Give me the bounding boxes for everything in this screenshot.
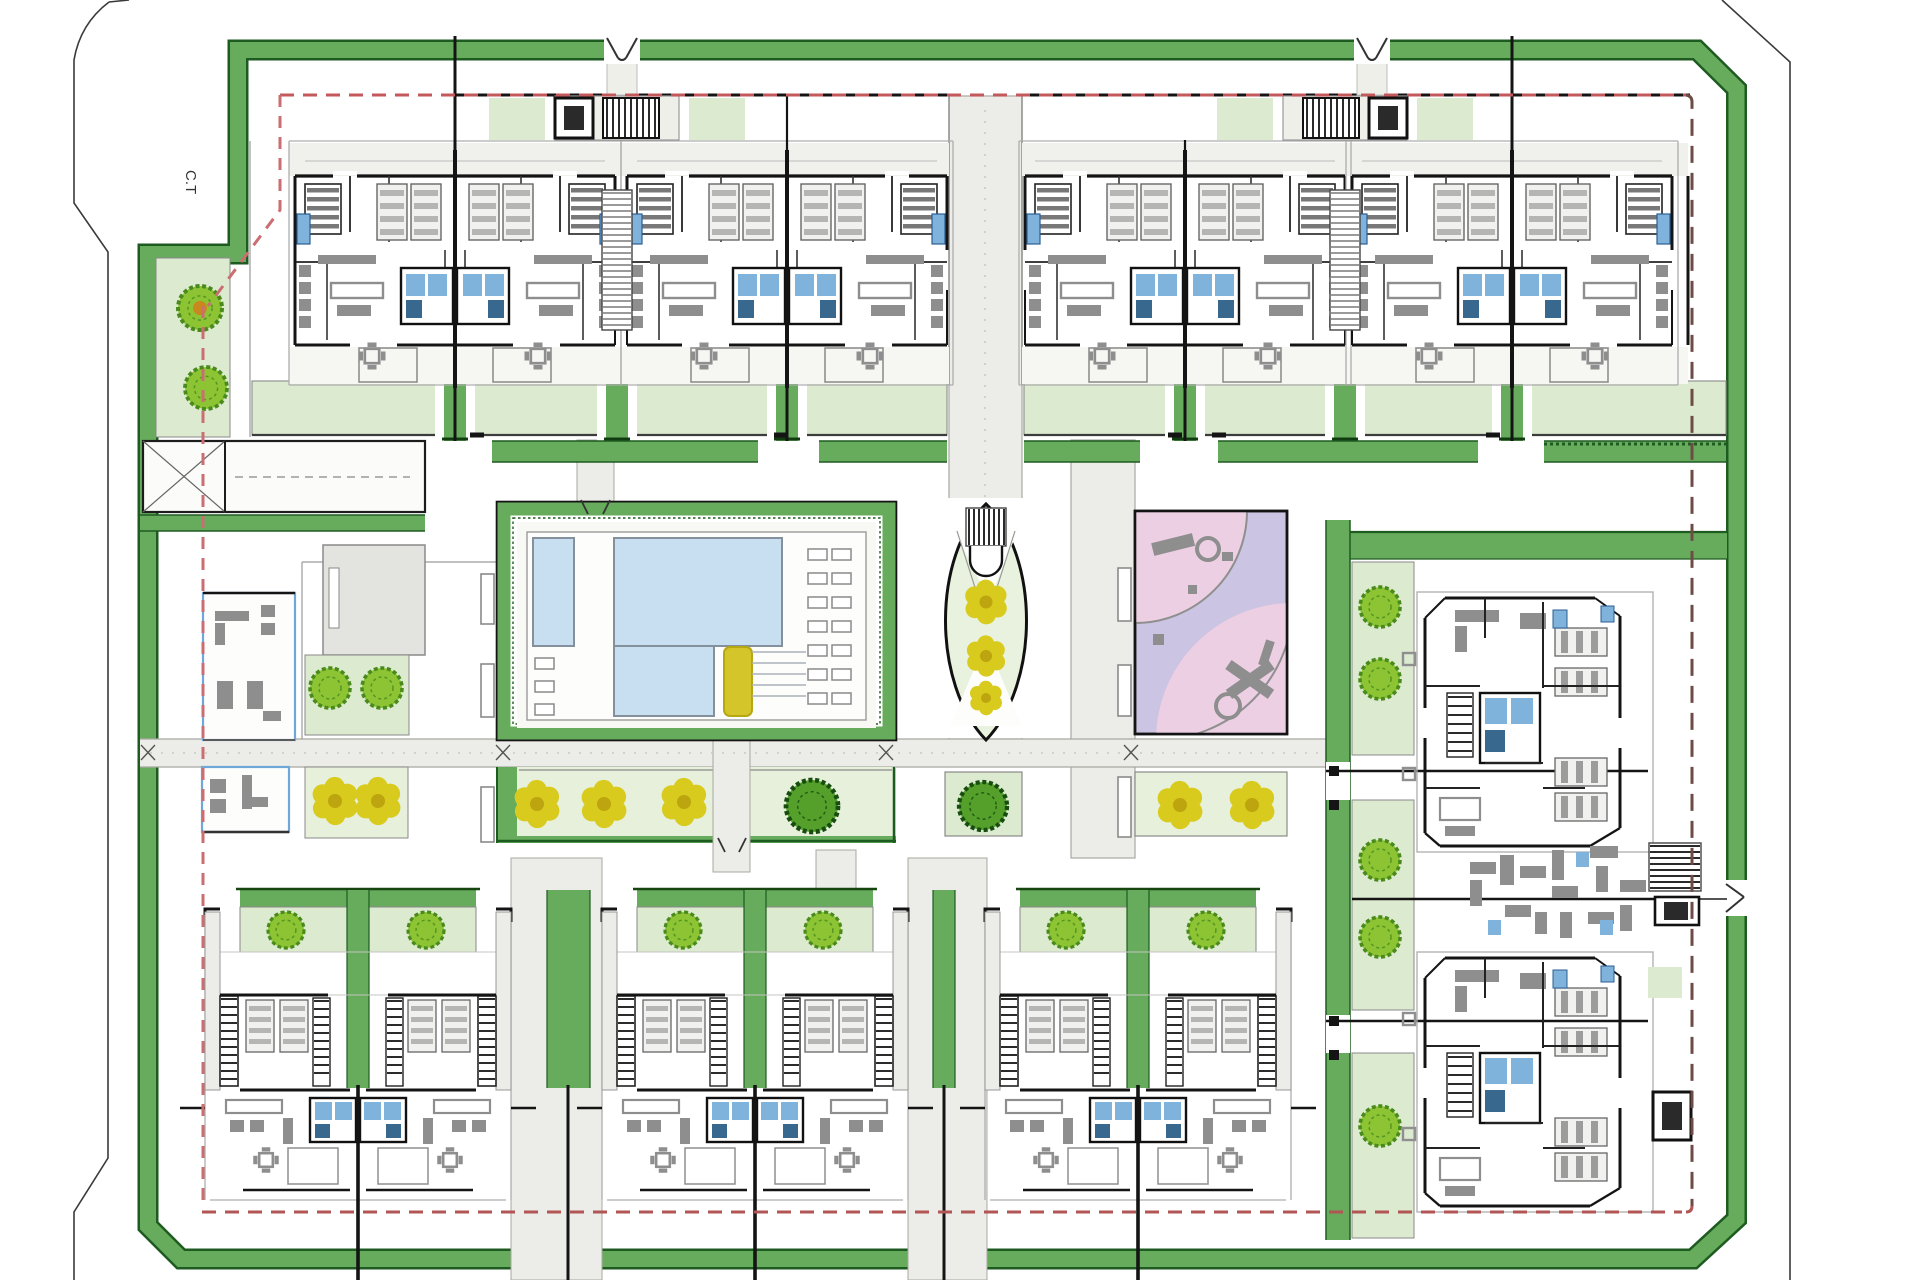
svg-text:C.T: C.T xyxy=(182,170,199,194)
